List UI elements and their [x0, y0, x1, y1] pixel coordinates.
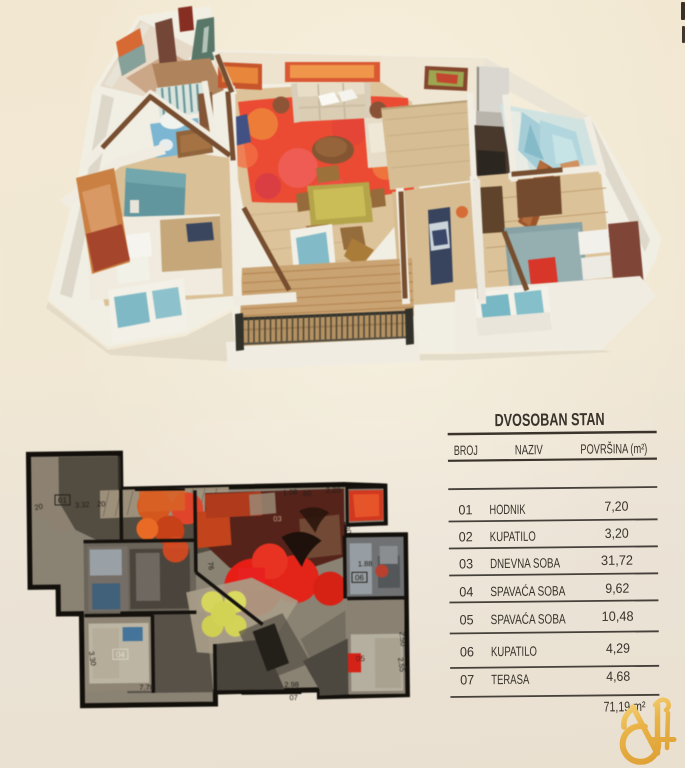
svg-text:BROJ: BROJ — [454, 443, 478, 458]
svg-text:02: 02 — [459, 529, 473, 544]
svg-text:01: 01 — [458, 502, 472, 517]
svg-text:07: 07 — [460, 672, 474, 687]
svg-text:06: 06 — [460, 644, 474, 659]
svg-text:SPAVAĆA SOBA: SPAVAĆA SOBA — [491, 611, 566, 627]
svg-text:9,62: 9,62 — [605, 581, 629, 596]
svg-text:04: 04 — [459, 584, 474, 599]
svg-text:7,20: 7,20 — [604, 499, 628, 514]
svg-text:31,72: 31,72 — [601, 553, 633, 568]
svg-text:03: 03 — [459, 556, 473, 571]
svg-text:05: 05 — [460, 612, 474, 627]
svg-text:DNEVNA SOBA: DNEVNA SOBA — [490, 555, 560, 571]
svg-text:TERASA: TERASA — [491, 672, 529, 687]
svg-text:DVOSOBAN STAN: DVOSOBAN STAN — [494, 409, 604, 430]
svg-text:NAZIV: NAZIV — [515, 442, 543, 457]
svg-text:4,68: 4,68 — [606, 669, 630, 684]
svg-text:KUPATILO: KUPATILO — [491, 644, 537, 659]
svg-text:SPAVAĆA SOBA: SPAVAĆA SOBA — [490, 583, 565, 599]
svg-text:10,48: 10,48 — [602, 609, 634, 624]
svg-text:POVRŠINA (m²): POVRŠINA (m²) — [580, 441, 647, 457]
svg-text:3,20: 3,20 — [605, 526, 629, 541]
svg-text:HODNIK: HODNIK — [489, 502, 525, 517]
svg-text:KUPATILO: KUPATILO — [490, 529, 536, 544]
svg-text:4,29: 4,29 — [606, 641, 630, 656]
